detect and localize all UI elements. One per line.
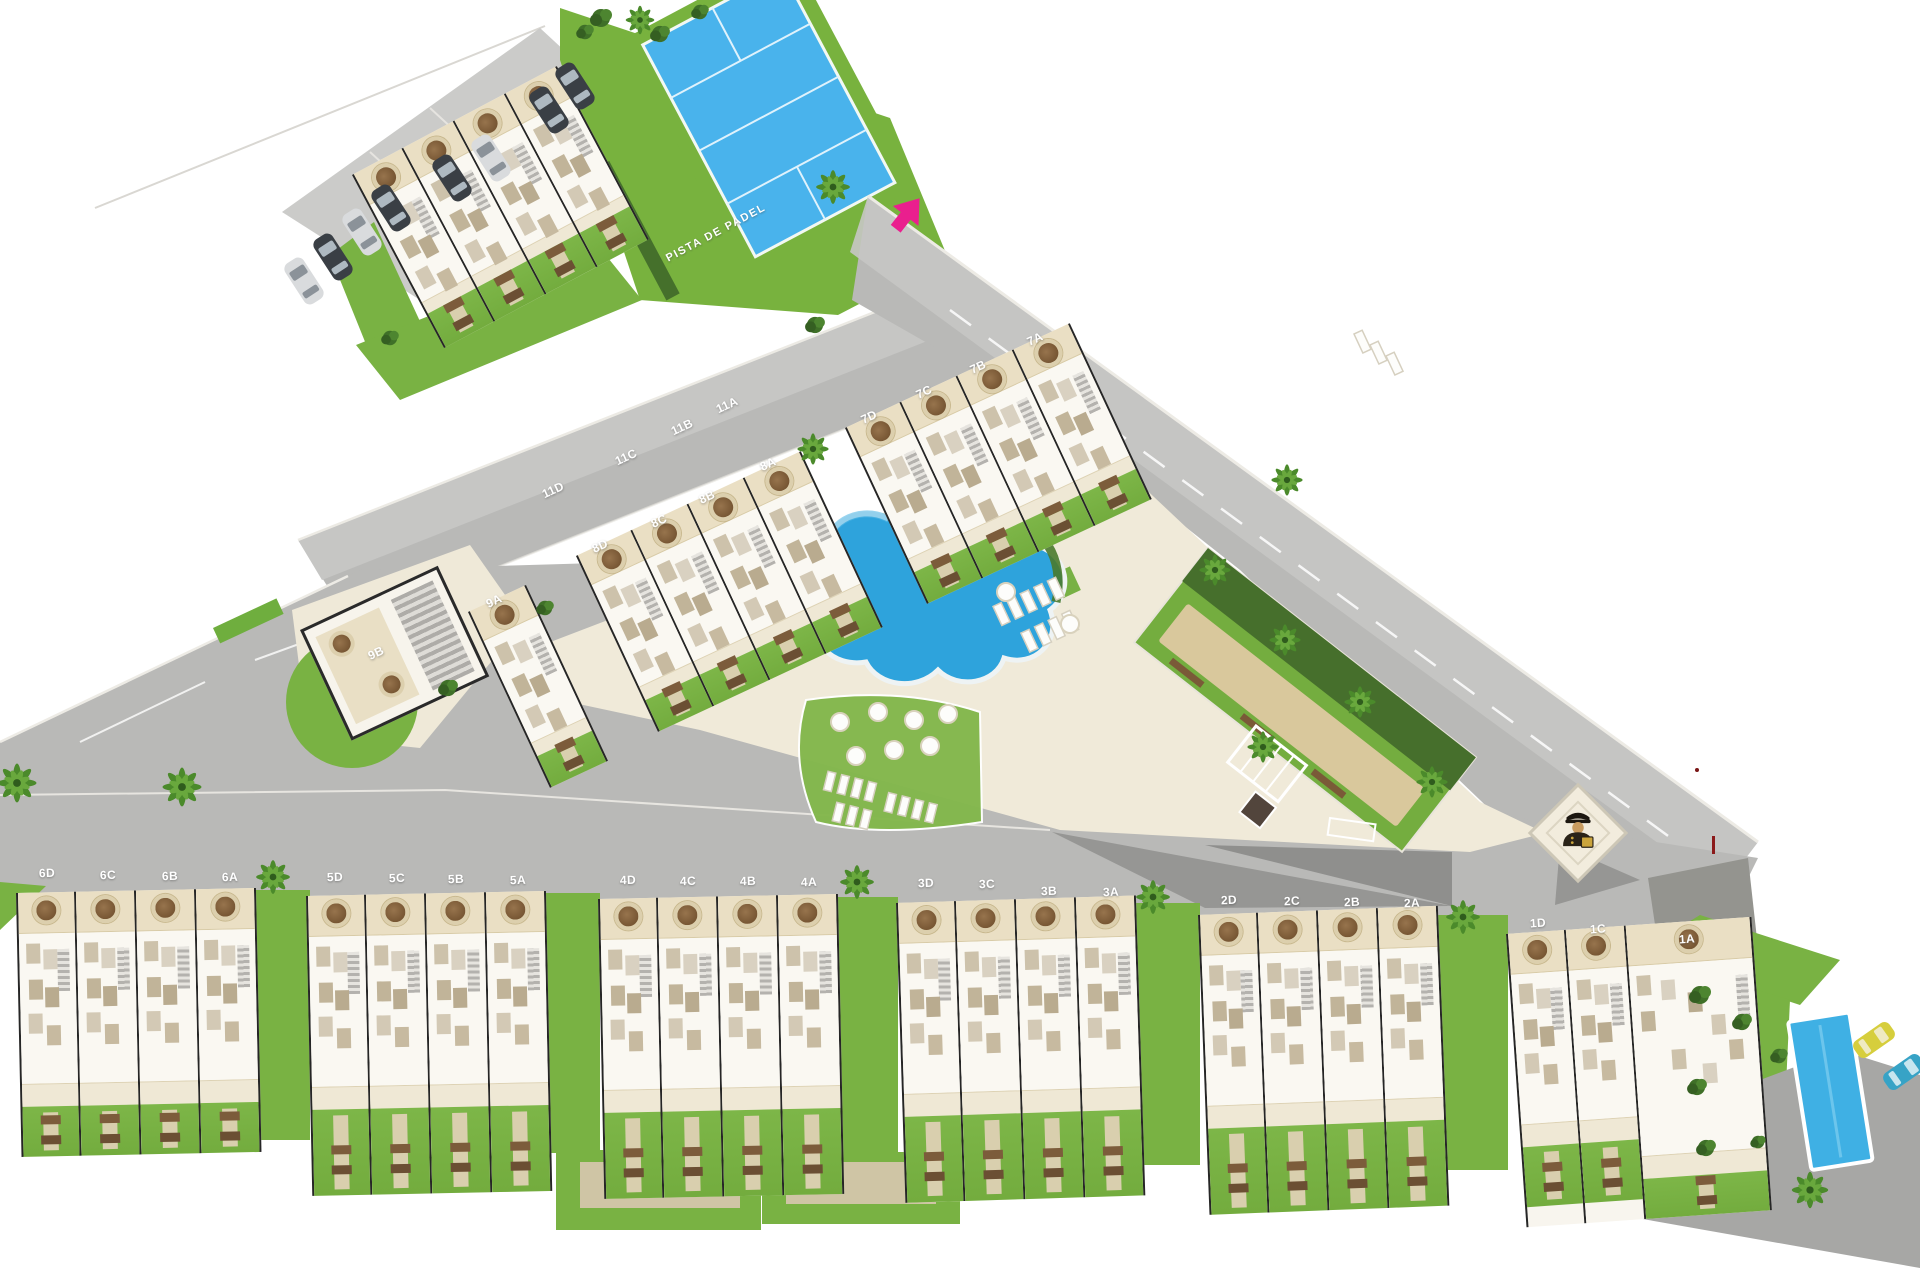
house-floorplan xyxy=(19,933,78,1084)
sunbathing-lawn xyxy=(799,695,982,830)
house-floorplan xyxy=(601,939,660,1090)
roof-terrace xyxy=(136,889,195,931)
roof-terrace xyxy=(196,888,255,930)
back-patio xyxy=(904,1092,961,1117)
site-plan: .carbody-d{fill:#3a3f45;} .carglass-d{fi… xyxy=(0,0,1920,1280)
roof-terrace xyxy=(1508,930,1567,975)
house-floorplan xyxy=(779,935,840,1086)
house-unit xyxy=(1378,906,1449,1208)
back-garden xyxy=(1083,1109,1144,1197)
back-patio xyxy=(1082,1086,1141,1111)
back-garden xyxy=(430,1106,490,1193)
house-floorplan xyxy=(1260,951,1324,1103)
roof-terrace xyxy=(366,894,425,936)
roof-terrace xyxy=(898,901,955,944)
house-floorplan xyxy=(77,932,138,1083)
back-garden xyxy=(1581,1139,1643,1203)
back-patio xyxy=(1385,1097,1444,1122)
back-garden xyxy=(1326,1122,1387,1210)
back-patio xyxy=(722,1086,780,1110)
roof-terrace xyxy=(76,891,135,933)
roof-terrace xyxy=(1258,910,1318,953)
back-patio xyxy=(1022,1088,1081,1113)
house-floorplan xyxy=(1319,949,1383,1101)
back-garden xyxy=(200,1102,259,1153)
roof-terrace xyxy=(18,892,75,934)
house-unit xyxy=(778,894,844,1195)
back-patio xyxy=(1207,1104,1264,1129)
back-garden xyxy=(604,1112,662,1199)
roof-terrace xyxy=(1378,906,1438,949)
back-garden xyxy=(22,1106,79,1157)
roof-terrace xyxy=(1076,896,1135,939)
back-patio xyxy=(312,1086,368,1110)
house-unit xyxy=(598,898,664,1199)
back-garden xyxy=(140,1103,199,1154)
roof-terrace xyxy=(1016,897,1075,940)
house-block-2 xyxy=(1198,906,1449,1215)
back-garden xyxy=(905,1115,964,1203)
house-floorplan xyxy=(1569,967,1637,1121)
roof-terrace xyxy=(426,892,485,934)
back-patio xyxy=(662,1087,720,1111)
house-block-5 xyxy=(306,891,552,1196)
back-garden xyxy=(370,1107,430,1194)
roof-terrace xyxy=(486,891,545,933)
house-floorplan xyxy=(309,936,368,1087)
house-floorplan xyxy=(427,933,488,1084)
house-floorplan xyxy=(137,930,198,1081)
back-garden xyxy=(963,1113,1024,1201)
house-unit-corner xyxy=(1626,917,1772,1219)
house-floorplan xyxy=(1629,958,1766,1156)
roof-terrace xyxy=(658,897,717,939)
house-floorplan xyxy=(367,935,428,1086)
house-unit xyxy=(136,889,202,1154)
roof-terrace xyxy=(1318,908,1378,951)
roof-terrace xyxy=(956,899,1015,942)
back-garden xyxy=(1208,1127,1267,1215)
back-garden xyxy=(722,1109,782,1196)
house-block-4 xyxy=(598,894,844,1199)
house-floorplan xyxy=(1202,954,1264,1106)
house-unit xyxy=(486,891,552,1192)
back-patio xyxy=(1265,1101,1324,1126)
house-unit xyxy=(956,899,1025,1201)
house-floorplan xyxy=(899,942,960,1094)
back-patio xyxy=(200,1079,258,1103)
house-unit xyxy=(658,896,724,1197)
roof-terrace xyxy=(600,898,657,940)
house-floorplan xyxy=(1017,938,1080,1090)
house-unit xyxy=(196,888,262,1153)
house-floorplan xyxy=(487,932,548,1083)
house-unit xyxy=(1016,897,1085,1199)
back-garden xyxy=(490,1105,550,1192)
roof-terrace xyxy=(1200,913,1258,956)
house-unit xyxy=(1076,895,1145,1197)
back-patio xyxy=(1325,1099,1384,1124)
back-patio xyxy=(140,1080,198,1104)
back-garden xyxy=(782,1108,842,1195)
back-garden xyxy=(80,1104,139,1155)
roof-terrace xyxy=(308,895,365,937)
house-unit xyxy=(366,893,432,1194)
back-patio xyxy=(604,1089,660,1113)
house-floorplan xyxy=(719,936,780,1087)
back-patio xyxy=(962,1090,1021,1115)
house-floorplan xyxy=(197,929,258,1080)
house-block-3 xyxy=(896,895,1145,1202)
back-patio xyxy=(490,1082,548,1106)
back-patio xyxy=(430,1083,488,1107)
back-garden xyxy=(1266,1124,1327,1212)
back-garden xyxy=(1023,1111,1084,1199)
house-unit xyxy=(76,890,142,1155)
house-unit xyxy=(426,892,492,1193)
house-unit xyxy=(306,895,372,1196)
back-garden xyxy=(1386,1120,1447,1208)
back-patio xyxy=(782,1085,840,1109)
house-floorplan xyxy=(957,940,1020,1092)
roof-terrace xyxy=(718,895,777,937)
back-garden xyxy=(1523,1143,1583,1207)
house-block-6 xyxy=(16,888,261,1157)
back-patio xyxy=(370,1084,428,1108)
house-floorplan xyxy=(1511,971,1577,1125)
house-block-1 xyxy=(1506,917,1772,1227)
back-garden xyxy=(662,1110,722,1197)
house-floorplan xyxy=(659,938,720,1089)
back-garden xyxy=(312,1109,370,1196)
house-unit xyxy=(718,895,784,1196)
house-floorplan xyxy=(1077,937,1140,1089)
house-unit xyxy=(16,892,82,1157)
back-patio xyxy=(80,1081,138,1105)
house-unit xyxy=(896,901,965,1203)
back-patio xyxy=(22,1083,78,1107)
house-floorplan xyxy=(1379,947,1443,1099)
roof-terrace xyxy=(778,894,837,936)
roof-terrace xyxy=(1566,926,1627,971)
